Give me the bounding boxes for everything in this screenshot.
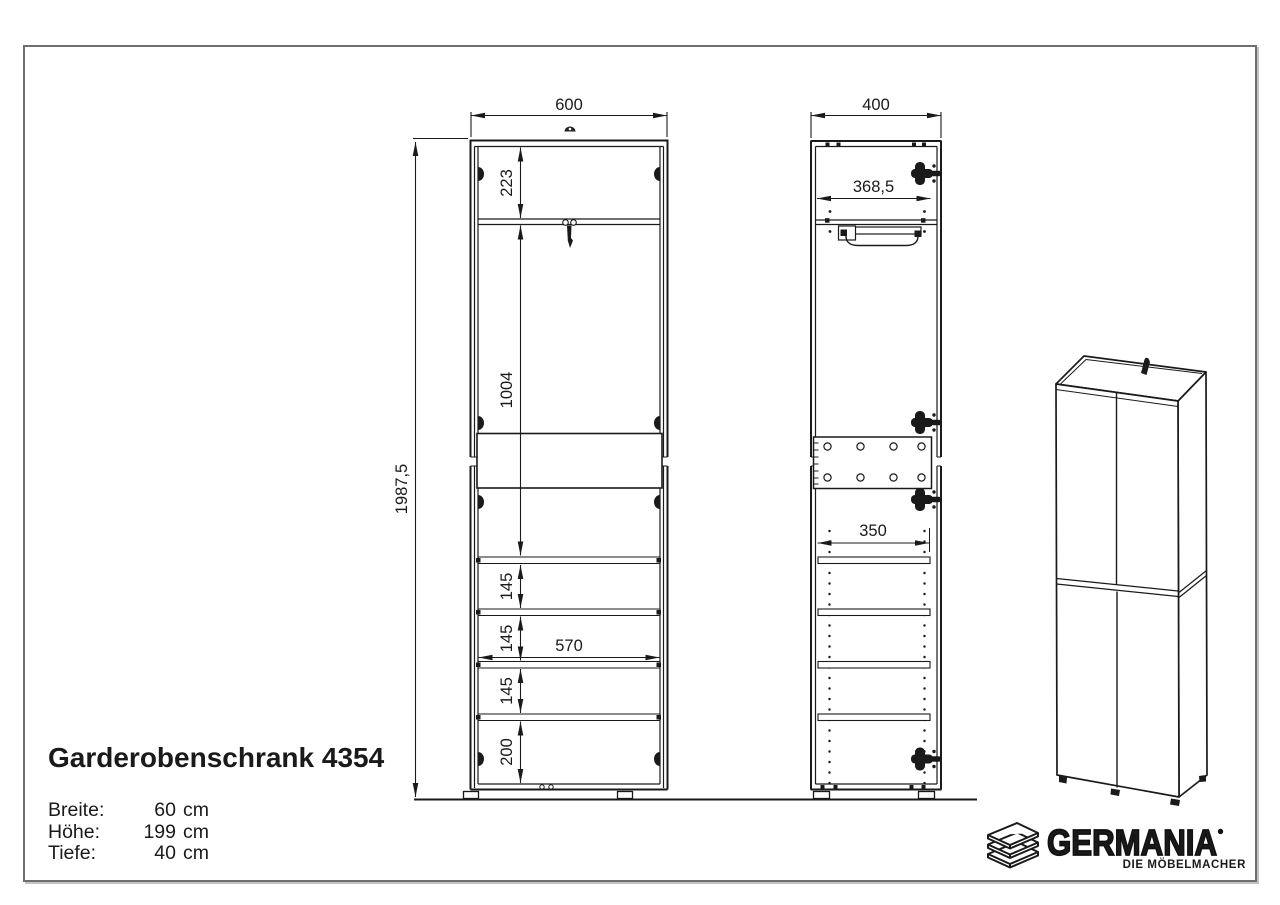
spec-unit: cm bbox=[183, 822, 209, 844]
germania-logo: GERMANIA DIE MÖBELMACHER bbox=[988, 822, 1246, 871]
spec-value: 199 bbox=[132, 822, 176, 844]
product-title: Garderobenschrank 4354 bbox=[48, 742, 384, 774]
spec-unit: cm bbox=[183, 843, 209, 865]
side-foot-right bbox=[919, 792, 935, 799]
dim-label-total-height: 1987,5 bbox=[393, 464, 411, 514]
spec-row-hoehe: Höhe: 199 cm bbox=[48, 822, 209, 844]
front-view bbox=[464, 127, 668, 799]
spec-label: Breite: bbox=[48, 800, 132, 822]
product-specs: Breite: 60 cm Höhe: 199 cm Tiefe: 40 cm bbox=[48, 800, 209, 865]
spec-label: Höhe: bbox=[48, 822, 132, 844]
dim-label-shelf-depth: 350 bbox=[859, 522, 887, 540]
brand-tagline: DIE MÖBELMACHER bbox=[1123, 858, 1246, 871]
front-foot-right bbox=[618, 792, 633, 799]
dim-label-interior-depth: 368,5 bbox=[853, 178, 894, 196]
dim-label-bottom-compartment: 200 bbox=[498, 738, 516, 766]
front-foot-left bbox=[464, 792, 479, 799]
perspective-view bbox=[1056, 356, 1207, 806]
side-view bbox=[811, 141, 942, 799]
side-shelves bbox=[818, 557, 930, 721]
dim-label-wardrobe-section: 1004 bbox=[498, 372, 516, 409]
spec-row-tiefe: Tiefe: 40 cm bbox=[48, 843, 209, 865]
spec-sheet-page: 600 400 368,5 350 570 223 1004 1987,5 14… bbox=[0, 0, 1280, 905]
dim-label-top-compartment: 223 bbox=[498, 169, 516, 197]
dim-label-front-width: 600 bbox=[555, 96, 583, 114]
side-foot-left bbox=[814, 792, 830, 799]
dim-label-shelf-gap-1: 145 bbox=[498, 573, 516, 601]
front-drawer bbox=[477, 434, 662, 489]
spec-value: 60 bbox=[132, 800, 176, 822]
spec-row-breite: Breite: 60 cm bbox=[48, 800, 209, 822]
registered-mark-dot bbox=[1218, 829, 1223, 834]
spec-value: 40 bbox=[132, 843, 176, 865]
clothes-rail bbox=[839, 226, 922, 246]
logo-boards-icon bbox=[988, 823, 1038, 868]
dim-label-shelf-gap-3: 145 bbox=[498, 677, 516, 705]
dim-label-shelf-gap-2: 145 bbox=[498, 625, 516, 653]
dim-label-interior-width: 570 bbox=[555, 637, 583, 655]
brand-name: GERMANIA bbox=[1047, 822, 1217, 863]
dim-label-side-depth: 400 bbox=[862, 96, 890, 114]
spec-unit: cm bbox=[183, 800, 209, 822]
spec-label: Tiefe: bbox=[48, 843, 132, 865]
side-drawer bbox=[814, 437, 932, 489]
